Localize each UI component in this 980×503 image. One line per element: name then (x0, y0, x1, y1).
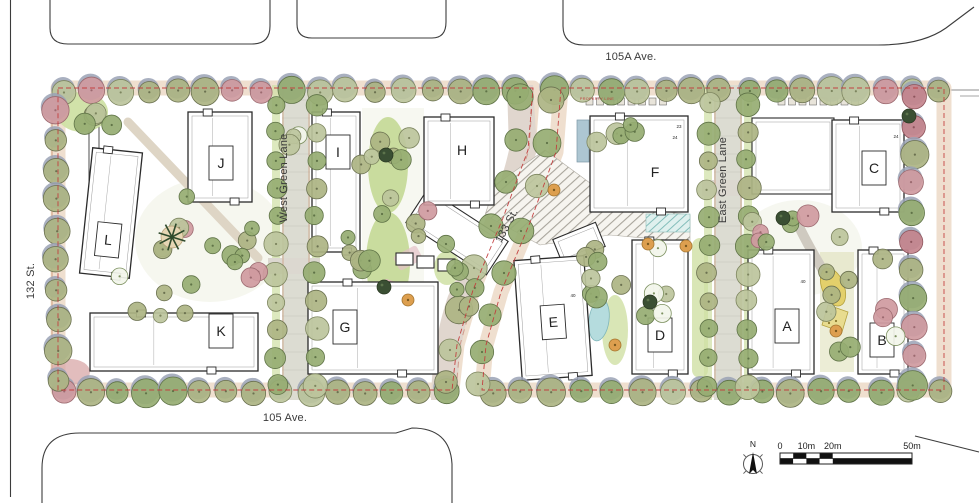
building-label: A (782, 318, 792, 334)
street-label-105-ave: 105 Ave. (263, 412, 307, 424)
scale-tick-label: 10m (798, 441, 816, 451)
scale-tick-label: 20m (824, 441, 842, 451)
building-wing (752, 118, 834, 194)
building-E: E (514, 253, 593, 384)
building-label: E (548, 314, 558, 331)
building-label: F (651, 164, 660, 180)
site-plan-canvas: ABCDEFGHIJKL PROPERTY LINE 2324244040 N0… (0, 0, 980, 503)
building-label: K (216, 323, 226, 339)
scale-bar: 010m20m50m (777, 441, 920, 464)
scale-tick-label: 50m (903, 441, 921, 451)
site-plan-screenshot: ABCDEFGHIJKL PROPERTY LINE 2324244040 N0… (0, 0, 980, 503)
building-C: C (832, 117, 904, 215)
unit-count-annotation: 40 (800, 279, 806, 284)
building-label: J (218, 155, 225, 171)
building-K: K (90, 310, 258, 374)
building-label: I (336, 144, 340, 160)
street-label-105a-ave: 105A Ave. (605, 51, 656, 63)
building-label: G (340, 319, 351, 335)
unit-count-annotation: 40 (570, 293, 576, 298)
building-label: B (877, 332, 886, 348)
north-and-scale-legend: N010m20m50m (743, 439, 920, 474)
building-label: C (869, 160, 879, 176)
unit-count-annotation: 24 (672, 135, 678, 140)
building-J: J (188, 109, 252, 205)
north-arrow: N (743, 439, 762, 474)
building-label: H (457, 142, 467, 158)
unit-count-annotation: 23 (676, 124, 682, 129)
north-label: N (750, 439, 756, 449)
building-wing (417, 256, 434, 268)
unit-count-annotation: 24 (893, 134, 899, 139)
street-label-132-st: 132 St. (25, 263, 37, 299)
building-wing (396, 253, 413, 265)
street-label-west-green-lane: West Green Lane (278, 133, 290, 222)
property-line-label: PROPERTY LINE (580, 97, 614, 101)
scale-tick-label: 0 (777, 441, 782, 451)
building-H: H (424, 114, 494, 208)
street-label-east-green-lane: East Green Lane (717, 137, 729, 223)
building-label: D (655, 327, 665, 343)
